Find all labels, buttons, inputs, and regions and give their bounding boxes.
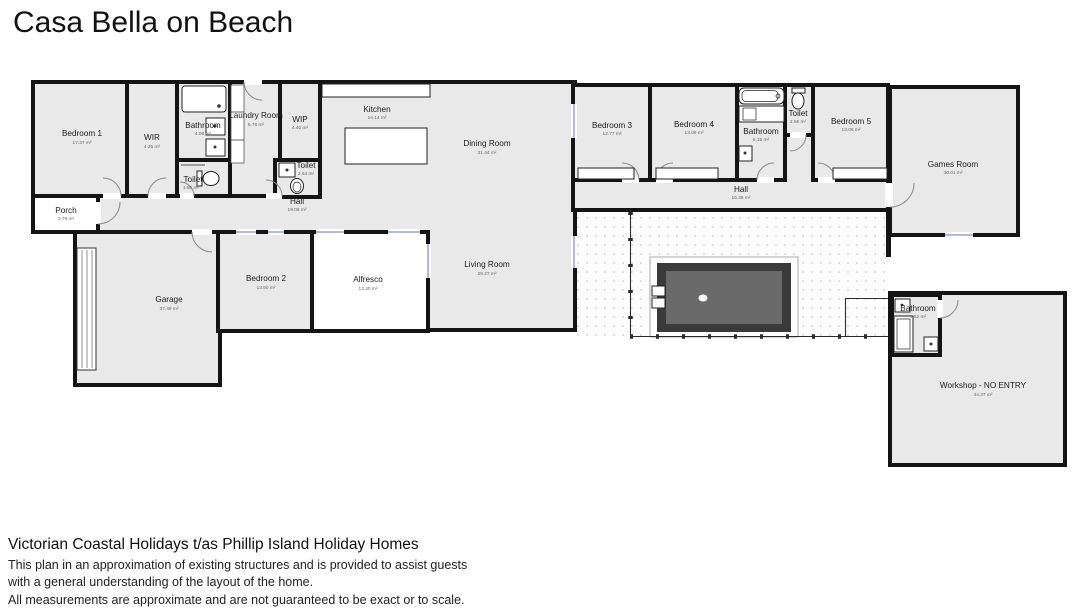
- room-label: Bathroom: [743, 127, 779, 136]
- room-garage: [75, 232, 220, 385]
- room-label: Living Room: [464, 260, 510, 269]
- kitchen-island: [345, 128, 427, 164]
- room-label: Bedroom 3: [592, 121, 632, 130]
- door-gap: [148, 193, 166, 199]
- room-area: 17.37 m²: [73, 140, 92, 146]
- page: Casa Bella on Beach: [0, 0, 1080, 608]
- room-label: Bathroom: [185, 121, 221, 130]
- room-label: Toilet: [183, 175, 203, 184]
- room-area: 19.06 m²: [288, 207, 307, 213]
- room-area: 13.06 m²: [842, 127, 861, 133]
- room-label: Garage: [155, 295, 183, 304]
- room-label: Laundry Room: [229, 111, 283, 120]
- room-area: 4.40 m²: [292, 125, 309, 131]
- room-label: WIR: [144, 133, 160, 142]
- footer-disclaimer-line: with a general understanding of the layo…: [8, 574, 467, 591]
- pool-ladder-icon: [652, 298, 665, 308]
- robe-icon: [833, 168, 887, 179]
- room-area: 4.08 m²: [195, 131, 212, 137]
- room-area: 16.35 m²: [732, 195, 751, 201]
- room-label: Toilet: [296, 161, 316, 170]
- room-label: Games Room: [928, 160, 979, 169]
- room-label: Workshop - NO ENTRY: [940, 381, 1027, 390]
- room-label: Dining Room: [463, 139, 511, 148]
- door-gap: [937, 300, 943, 318]
- room-area: 2.64 m²: [298, 171, 315, 177]
- room-label: Bathroom: [900, 304, 936, 313]
- door-gap: [790, 132, 806, 138]
- door-gap: [192, 229, 212, 235]
- door-gap: [757, 177, 774, 183]
- door-gap: [103, 193, 121, 199]
- shower-drain-icon: [217, 104, 221, 108]
- footer-disclaimer-line: This plan in an approximation of existin…: [8, 557, 467, 574]
- room-area: 1.80 m²: [183, 185, 200, 191]
- room-label: Toilet: [788, 109, 808, 118]
- robe-icon: [578, 168, 634, 179]
- toilet-icon: [291, 179, 304, 194]
- room-label: Bedroom 1: [62, 129, 102, 138]
- pool-water: [666, 271, 782, 324]
- room-label: Hall: [290, 197, 304, 206]
- room-area: 14.14 m²: [368, 115, 387, 121]
- room-label: Kitchen: [363, 105, 391, 114]
- tap-icon: [744, 152, 747, 155]
- room-area: 4.52 m²: [910, 314, 927, 320]
- room-area: 12.77 m²: [603, 131, 622, 137]
- room-area: 37.49 m²: [160, 306, 179, 312]
- pool: [650, 257, 798, 337]
- kitchen-bench: [322, 84, 430, 97]
- room-label: WIP: [292, 115, 308, 124]
- door-gap: [818, 177, 835, 183]
- room-area: 13.40 m²: [359, 286, 378, 292]
- room-label: Porch: [55, 206, 77, 215]
- toilet-icon: [203, 172, 219, 186]
- toilet-tank-icon: [792, 88, 805, 93]
- room-area: 13.06 m²: [685, 130, 704, 136]
- room-area: 4.25 m²: [144, 144, 161, 150]
- door-gap: [885, 183, 893, 207]
- footer: Victorian Coastal Holidays t/as Phillip …: [8, 536, 467, 608]
- pool-ladder-icon: [652, 286, 665, 296]
- footer-disclaimer-line: All measurements are approximate and are…: [8, 592, 467, 608]
- room-area: 44.37 m²: [974, 392, 993, 398]
- room-area: 29.27 m²: [478, 271, 497, 277]
- tap-icon: [214, 146, 217, 149]
- room-label: Bedroom 5: [831, 117, 871, 126]
- laundry-bench: [231, 85, 244, 163]
- room-area: 3.79 m²: [58, 216, 75, 222]
- room-label: Alfresco: [353, 275, 383, 284]
- footer-company: Victorian Coastal Holidays t/as Phillip …: [8, 536, 467, 554]
- robe-icon: [656, 168, 718, 179]
- tap-icon: [930, 343, 933, 346]
- door-gap: [244, 79, 262, 85]
- tap-icon: [286, 169, 289, 172]
- vanity-icon: [739, 106, 784, 122]
- door-gap: [180, 193, 194, 199]
- door-gap: [266, 193, 282, 199]
- floor-plan: Bedroom 1 17.37 m² WIR 4.25 m² Bathroom …: [0, 0, 1080, 608]
- room-bedroom1: [33, 82, 127, 196]
- garage-door: [77, 248, 96, 370]
- room-area: 2.56 m²: [790, 119, 807, 125]
- room-area: 6.15 m²: [753, 137, 770, 143]
- room-area: 13.50 m²: [257, 285, 276, 291]
- room-label: Hall: [734, 185, 748, 194]
- room-area: 30.01 m²: [944, 170, 963, 176]
- pool-light-icon: [699, 295, 708, 302]
- room-area: 5.76 m²: [248, 122, 265, 128]
- room-area: 31.44 m²: [478, 150, 497, 156]
- room-label: Bedroom 4: [674, 120, 714, 129]
- room-label: Bedroom 2: [246, 274, 286, 283]
- toilet-icon: [792, 93, 804, 109]
- shower-icon: [182, 86, 226, 112]
- door-gap: [95, 202, 101, 224]
